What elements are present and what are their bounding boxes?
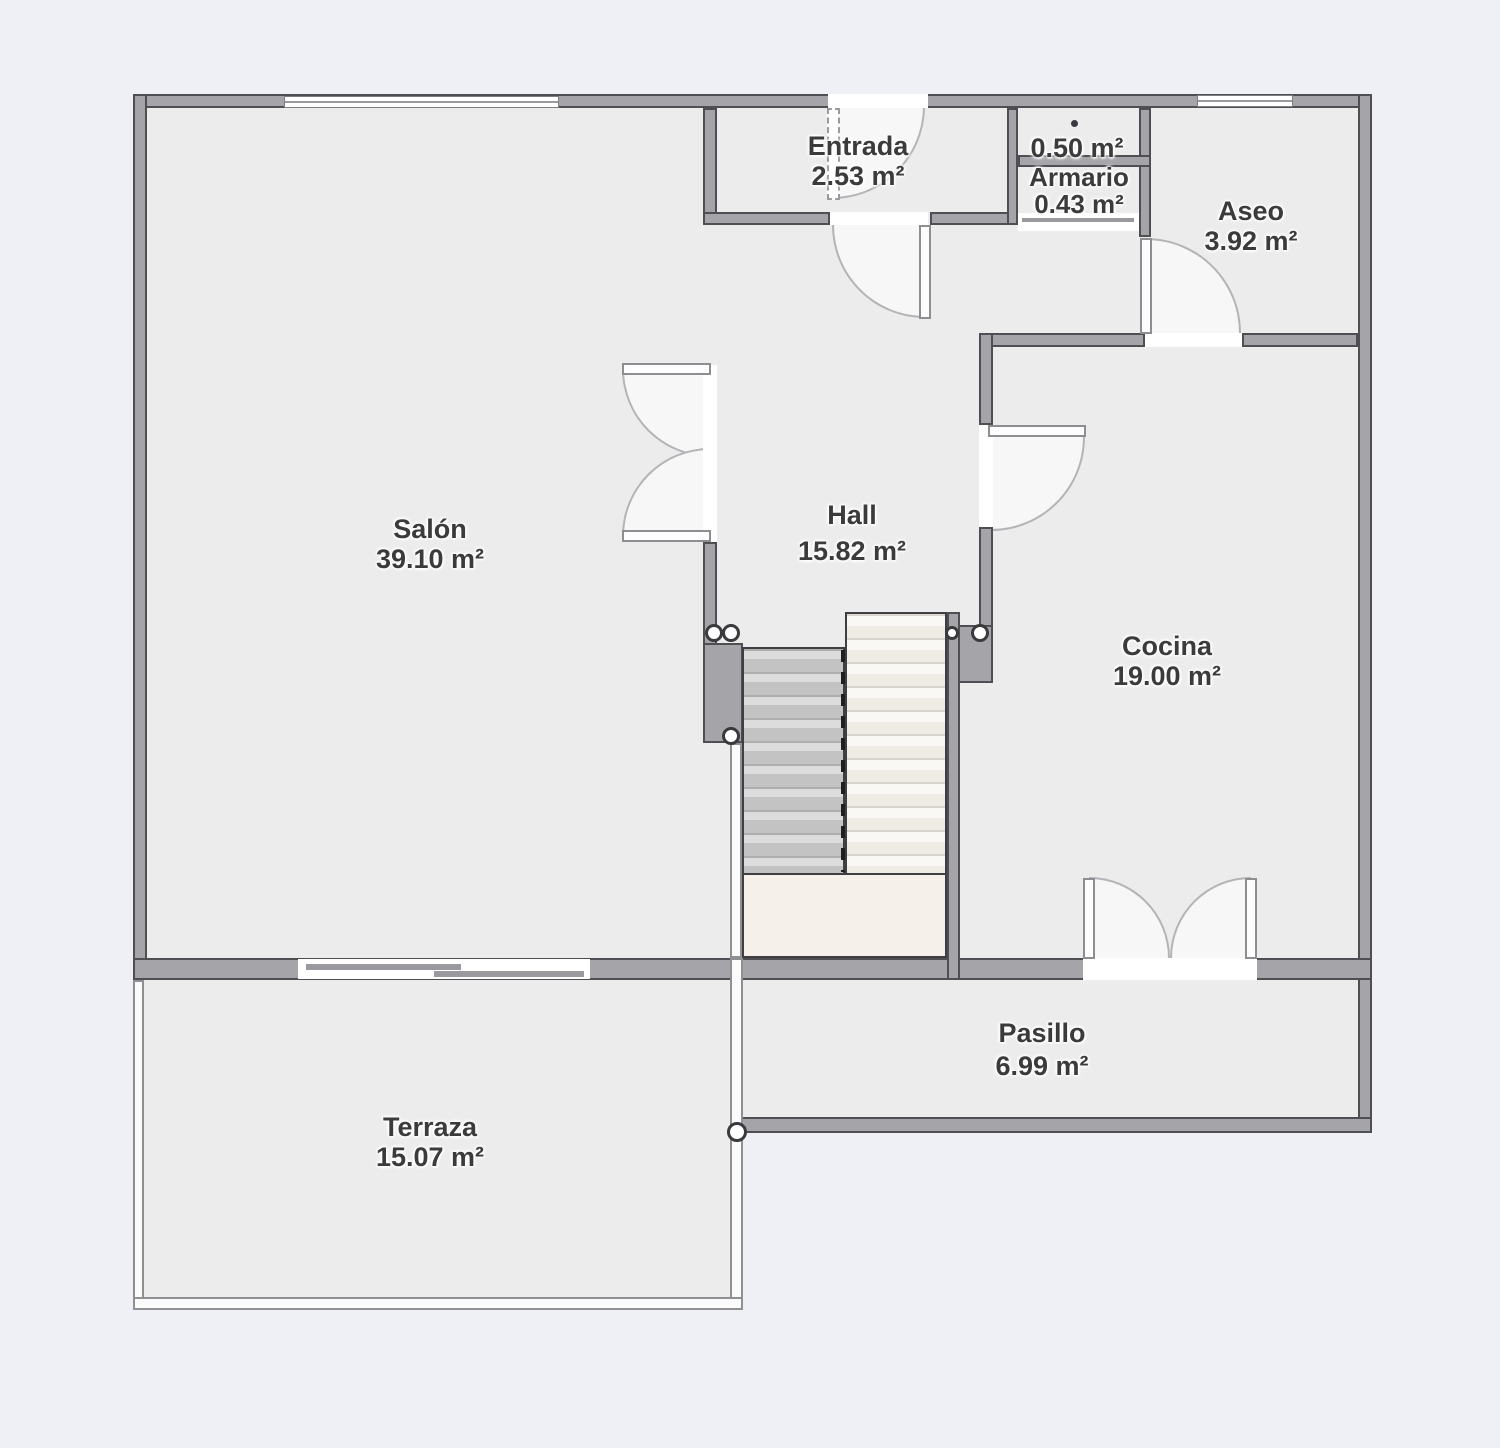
wall-entrada-left	[703, 108, 717, 225]
room-name: Terraza	[376, 1112, 484, 1142]
wall-post	[722, 624, 740, 642]
room-area: 3.92 m²	[1204, 226, 1297, 256]
sliding-panel-right	[434, 971, 584, 977]
threshold-entrada-hall	[830, 212, 928, 225]
room-name: Pasillo	[995, 1017, 1088, 1050]
stair-flight-down	[742, 647, 845, 875]
door-leaf-pasillo-left	[1083, 878, 1095, 959]
room-area: 19.00 m²	[1113, 661, 1221, 691]
window-salon	[284, 96, 559, 108]
room-label-cocina: Cocina 19.00 m²	[1113, 631, 1221, 691]
room-area: 15.82 m²	[798, 533, 906, 569]
room-label-armario: Armario 0.43 m²	[1029, 164, 1129, 218]
room-label-entrada: Entrada 2.53 m²	[808, 131, 909, 191]
threshold-salon-door	[703, 365, 717, 542]
wall-stair-left-thin	[730, 743, 742, 958]
wall-hall-cocina-lower	[979, 527, 993, 640]
wall-closet-right	[1139, 108, 1151, 237]
stair-divider-dashed	[841, 650, 845, 872]
wall-entrada-bottom-right	[930, 212, 1018, 225]
room-label-pasillo: Pasillo 6.99 m²	[995, 1017, 1088, 1083]
wall-stair-right	[947, 612, 960, 980]
threshold-front-door	[828, 94, 928, 108]
door-leaf-aseo	[1140, 238, 1152, 334]
threshold-cocina-door	[979, 425, 993, 527]
room-name: Entrada	[808, 131, 909, 161]
wall-pasillo-bottom	[732, 1117, 1372, 1133]
railing-terraza-right	[730, 1133, 743, 1310]
column-dot	[1071, 120, 1078, 127]
wall-post	[722, 727, 740, 745]
room-name: Hall	[798, 497, 906, 533]
room-label-closet-small: 0.50 m²	[1030, 133, 1123, 163]
door-leaf-pasillo-right	[1245, 878, 1257, 959]
floor-plan: Salón 39.10 m² Hall 15.82 m² Cocina 19.0…	[0, 0, 1500, 1448]
room-name: Salón	[376, 514, 484, 544]
wall-entrada-right	[1007, 108, 1018, 225]
room-name: Armario	[1029, 164, 1129, 191]
door-leaf-cocina	[988, 425, 1086, 437]
room-label-terraza: Terraza 15.07 m²	[376, 1112, 484, 1172]
room-label-aseo: Aseo 3.92 m²	[1204, 196, 1297, 256]
window-aseo	[1197, 95, 1293, 107]
wall-exterior-left	[133, 94, 147, 980]
wall-post	[705, 624, 723, 642]
door-leaf-salon-bottom	[622, 530, 711, 542]
door-leaf-salon-top	[622, 363, 711, 375]
room-area: 0.50 m²	[1030, 133, 1123, 163]
wall-post	[727, 1122, 747, 1142]
wall-entrada-bottom-left	[703, 212, 830, 225]
wall-stair-topleft-block	[703, 643, 743, 743]
room-area: 6.99 m²	[995, 1050, 1088, 1083]
railing-terraza-bottom	[133, 1297, 743, 1310]
room-area: 0.43 m²	[1029, 191, 1129, 218]
room-area: 15.07 m²	[376, 1142, 484, 1172]
wall-aseo-bottom-right	[1242, 333, 1358, 347]
railing-terraza-left	[133, 980, 144, 1310]
stair-landing	[742, 873, 947, 958]
threshold-aseo-door	[1145, 333, 1242, 347]
room-label-hall: Hall 15.82 m²	[798, 497, 906, 569]
room-name: Aseo	[1204, 196, 1297, 226]
sliding-panel-left	[306, 964, 461, 970]
threshold-pasillo-doors	[1083, 958, 1257, 980]
wall-pasillo-terraza	[730, 958, 743, 1133]
wall-hall-cocina-upper	[979, 333, 993, 425]
stair-flight-up	[845, 612, 947, 875]
wall-post	[945, 626, 959, 640]
door-leaf-entrada-hall	[919, 225, 931, 319]
wall-post	[971, 624, 989, 642]
room-name: Cocina	[1113, 631, 1221, 661]
room-area: 39.10 m²	[376, 544, 484, 574]
wall-aseo-bottom-left	[979, 333, 1145, 347]
room-label-salon: Salón 39.10 m²	[376, 514, 484, 574]
room-area: 2.53 m²	[808, 161, 909, 191]
